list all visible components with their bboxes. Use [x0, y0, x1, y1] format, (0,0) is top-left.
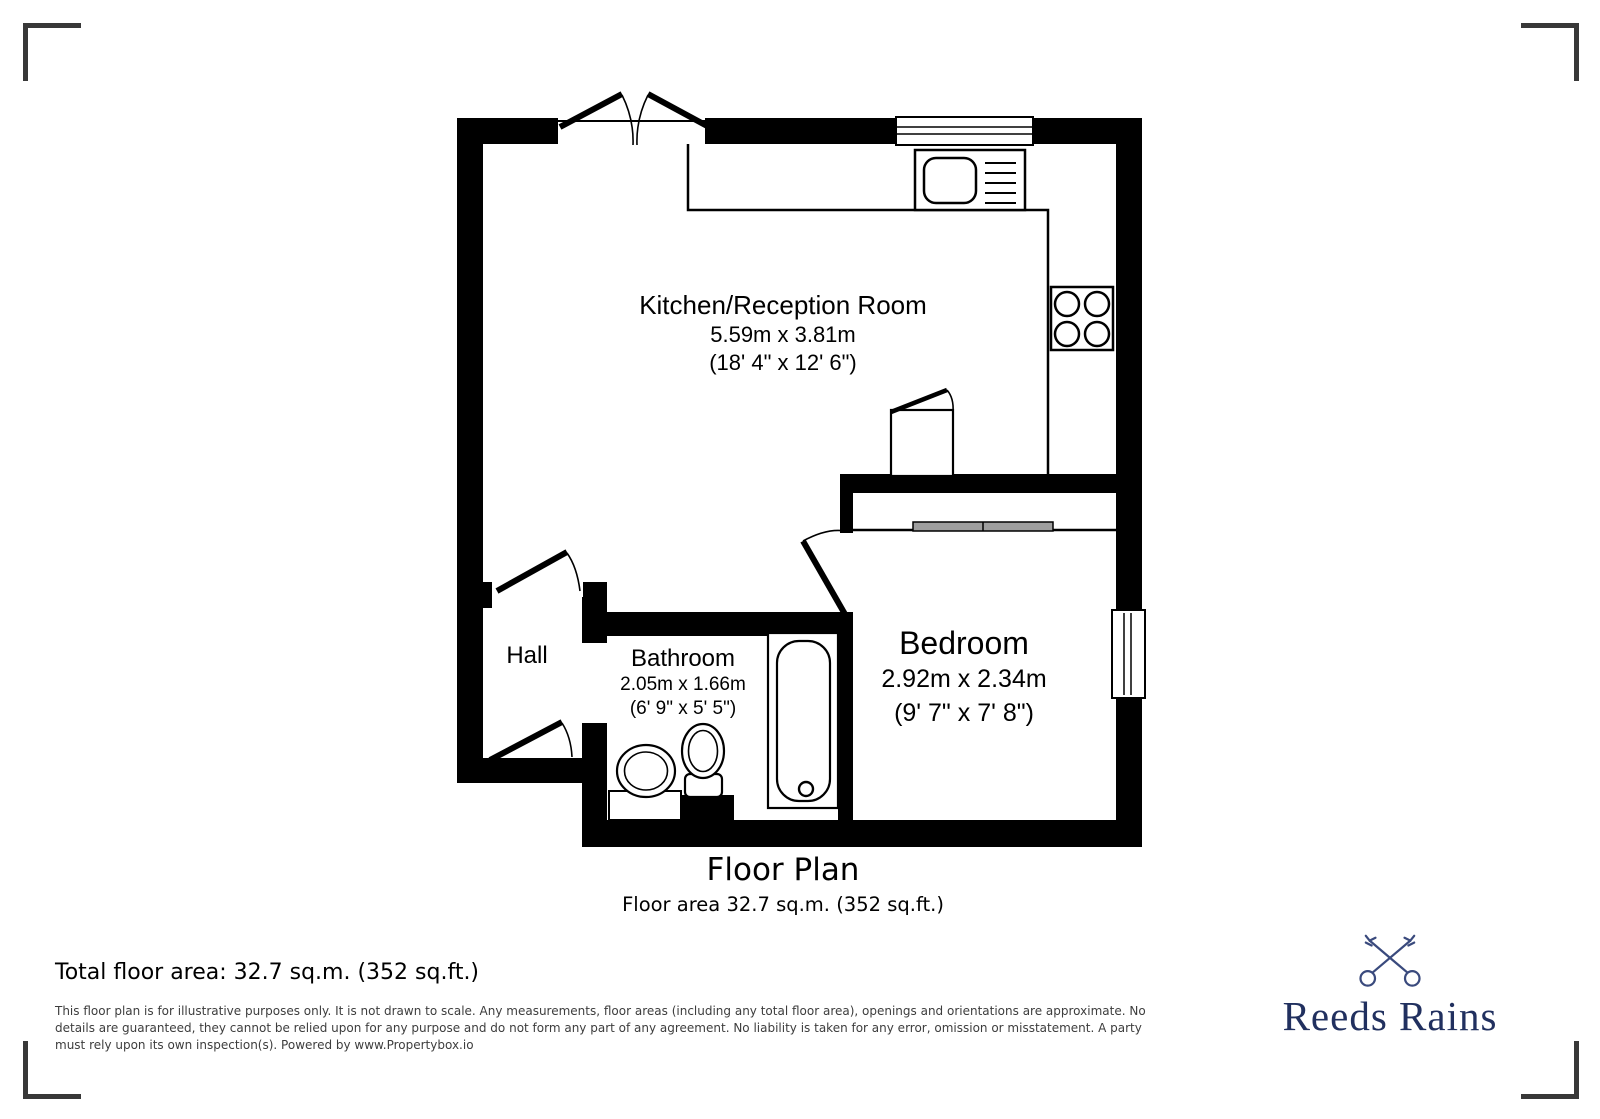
crossed-keys-icon — [1355, 930, 1425, 990]
kitchen-name: Kitchen/Reception Room — [583, 290, 983, 321]
kitchen-dim-imperial: (18' 4" x 12' 6") — [583, 349, 983, 377]
plan-title: Floor Plan — [433, 852, 1133, 888]
basin-icon — [609, 745, 681, 820]
bathroom-name: Bathroom — [583, 645, 783, 673]
corner-mark-bottom-right — [1521, 1041, 1579, 1099]
entrance-double-door-icon — [558, 94, 709, 145]
hob-icon — [1051, 287, 1113, 350]
corner-mark-top-left — [23, 23, 81, 81]
disclaimer-line-1: This floor plan is for illustrative purp… — [55, 1003, 1215, 1020]
plan-floor-area: Floor area 32.7 sq.m. (352 sq.ft.) — [433, 893, 1133, 916]
room-label-bathroom: Bathroom 2.05m x 1.66m (6' 9" x 5' 5") — [583, 645, 783, 721]
bathroom-dim-imperial: (6' 9" x 5' 5") — [583, 697, 783, 721]
window-icon — [1112, 610, 1145, 698]
disclaimer-line-3: must rely upon its own inspection(s). Po… — [55, 1037, 1215, 1054]
door-swing-icon — [497, 552, 580, 591]
room-label-kitchen: Kitchen/Reception Room 5.59m x 3.81m (18… — [583, 290, 983, 377]
disclaimer-line-2: details are guaranteed, they cannot be r… — [55, 1020, 1215, 1037]
kitchen-dim-metric: 5.59m x 3.81m — [583, 321, 983, 349]
room-label-hall: Hall — [477, 642, 577, 670]
floor-plan-drawing — [440, 80, 1160, 860]
cupboard-icon — [891, 390, 953, 476]
bedroom-name: Bedroom — [814, 624, 1114, 662]
room-label-bedroom: Bedroom 2.92m x 2.34m (9' 7" x 7' 8") — [814, 624, 1114, 730]
wardrobe-icon — [853, 522, 1116, 531]
window-icon — [896, 117, 1033, 145]
toilet-icon — [682, 724, 724, 797]
bedroom-dim-imperial: (9' 7" x 7' 8") — [814, 696, 1114, 730]
door-swing-icon — [490, 722, 572, 760]
floorplan-page: Kitchen/Reception Room 5.59m x 3.81m (18… — [0, 0, 1600, 1119]
reeds-rains-logo: Reeds Rains — [1250, 930, 1530, 1045]
door-swing-icon — [803, 530, 846, 616]
hall-name: Hall — [506, 642, 547, 669]
bathroom-dim-metric: 2.05m x 1.66m — [583, 673, 783, 697]
brand-name: Reeds Rains — [1250, 992, 1530, 1040]
sink-unit-icon — [915, 150, 1025, 210]
disclaimer-text: This floor plan is for illustrative purp… — [55, 1003, 1215, 1054]
bedroom-dim-metric: 2.92m x 2.34m — [814, 662, 1114, 696]
corner-mark-top-right — [1521, 23, 1579, 81]
total-floor-area: Total floor area: 32.7 sq.m. (352 sq.ft.… — [55, 960, 479, 985]
